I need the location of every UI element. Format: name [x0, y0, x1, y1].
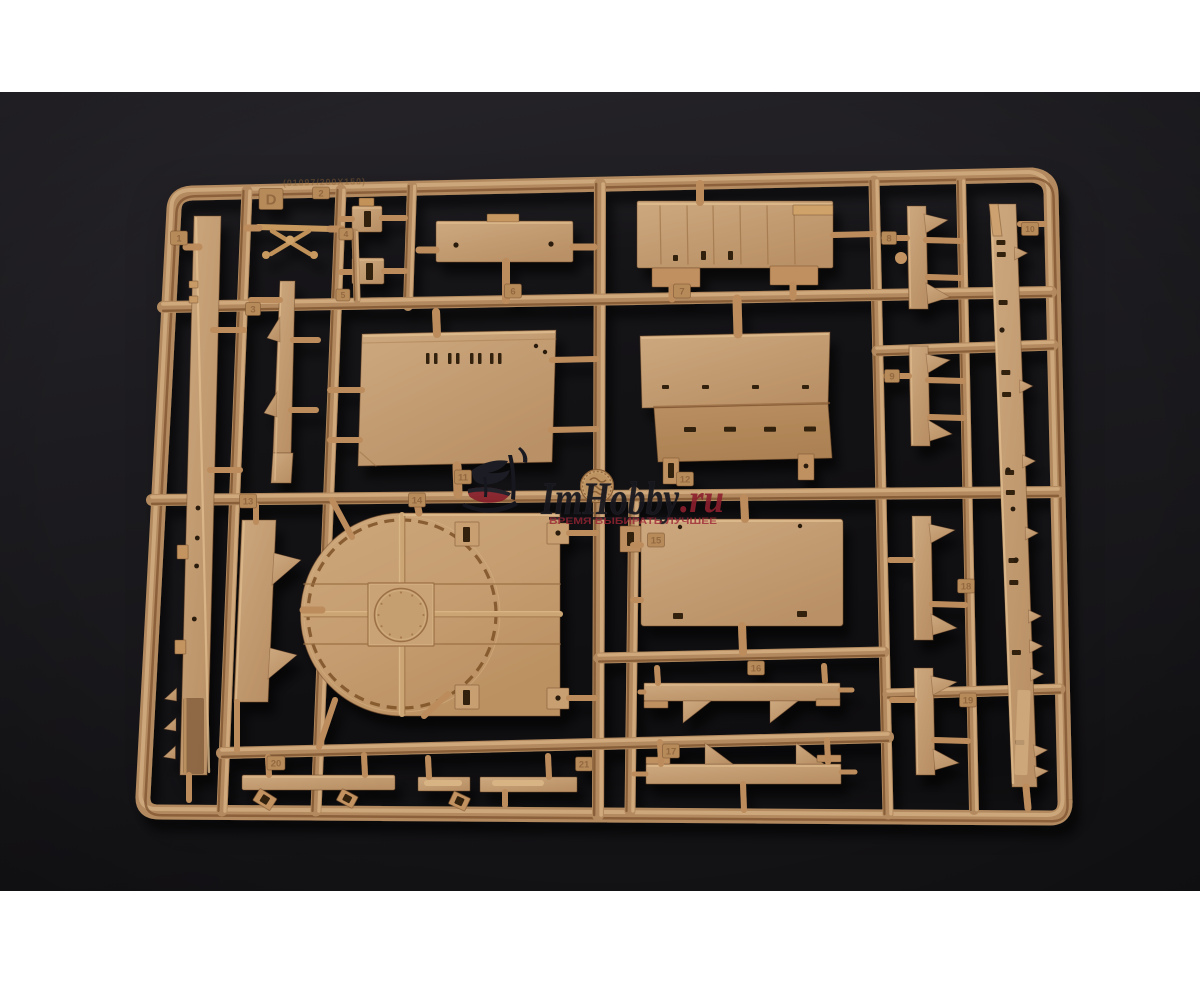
svg-text:14: 14: [412, 495, 423, 506]
svg-text:15: 15: [651, 535, 662, 546]
svg-text:3: 3: [250, 304, 255, 315]
svg-text:11: 11: [458, 472, 469, 483]
svg-text:D: D: [266, 191, 277, 208]
svg-text:6: 6: [510, 286, 515, 297]
svg-text:7: 7: [679, 286, 684, 297]
svg-text:18: 18: [961, 581, 972, 592]
svg-text:21: 21: [579, 759, 590, 770]
svg-text:9: 9: [889, 371, 894, 382]
svg-text:17: 17: [666, 746, 677, 757]
svg-text:2: 2: [318, 188, 323, 199]
svg-text:.ru: .ru: [680, 476, 724, 521]
svg-text:13: 13: [243, 496, 254, 507]
svg-text:16: 16: [751, 663, 762, 674]
svg-text:5: 5: [341, 290, 346, 300]
svg-text:8: 8: [886, 233, 891, 244]
svg-text:4: 4: [344, 229, 349, 239]
svg-text:ВРЕМЯ ВЫБИРАТЬ ЛУЧШЕЕ: ВРЕМЯ ВЫБИРАТЬ ЛУЧШЕЕ: [549, 516, 717, 527]
svg-text:19: 19: [963, 695, 974, 706]
svg-text:1: 1: [176, 233, 182, 244]
svg-text:10: 10: [1025, 224, 1035, 234]
svg-text:(01097/200X150): (01097/200X150): [283, 176, 365, 188]
svg-text:20: 20: [271, 758, 282, 769]
